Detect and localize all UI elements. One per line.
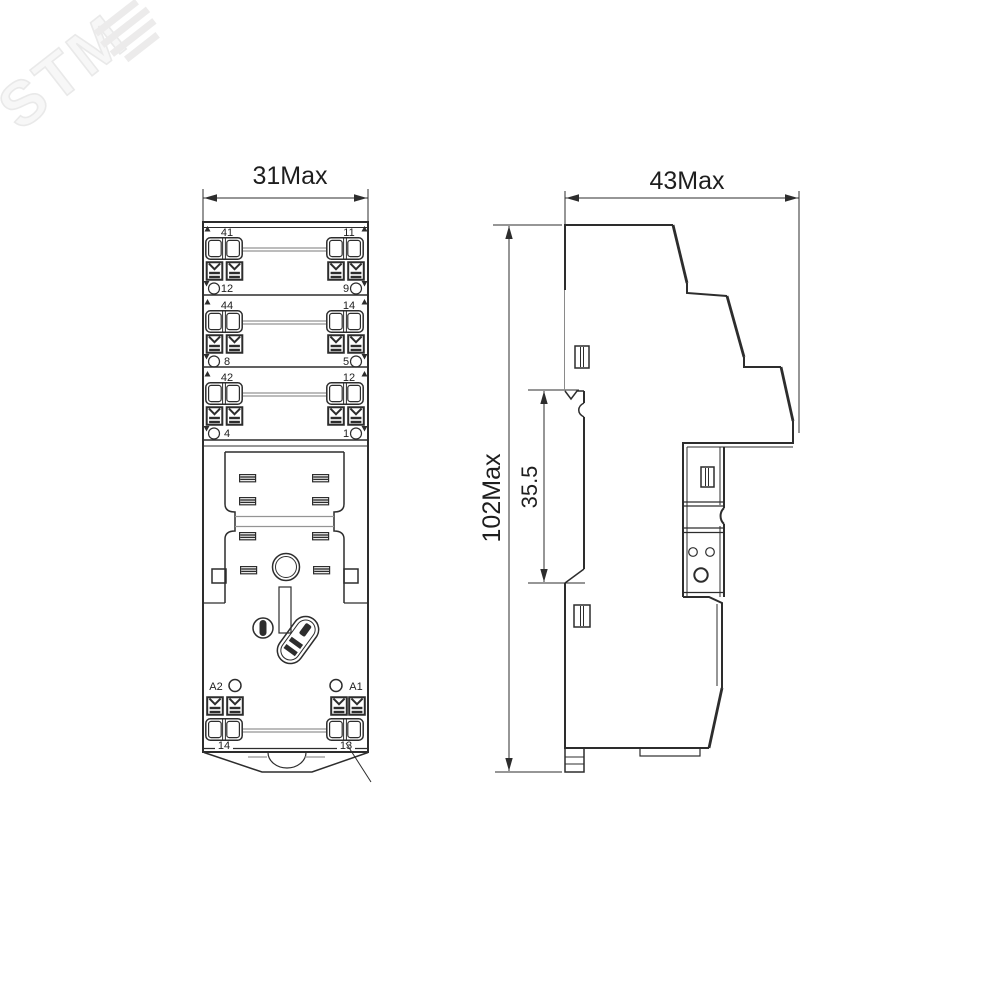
marker-up-icon <box>205 299 211 305</box>
front-width-label: 31Max <box>252 162 328 190</box>
marker-down-icon <box>362 354 368 360</box>
terminal-row-3: 42 12 4 1 <box>204 371 368 440</box>
terminal-label: 1 <box>343 428 349 440</box>
mounting-panel <box>203 452 368 669</box>
arrowhead-left-icon <box>566 194 579 201</box>
coil-label: A1 <box>349 681 362 693</box>
watermark: STM <box>0 0 164 143</box>
side-view: 43Max 102Max 35.5 <box>478 167 799 772</box>
watermark-text: STM <box>0 1 141 143</box>
side-tab-left <box>212 569 226 583</box>
marker-up-icon <box>205 226 211 232</box>
arrowhead-up-icon <box>505 226 512 239</box>
keyed-slot <box>272 611 324 668</box>
coil-label: 14 <box>218 740 230 752</box>
arrowhead-right-icon <box>785 194 798 201</box>
rail-notch <box>721 508 724 524</box>
terminal-label: 4 <box>224 428 230 440</box>
front-width-dimension: 31Max <box>203 162 368 221</box>
terminal-label: 5 <box>343 356 349 368</box>
side-depth-dimension: 43Max <box>565 167 799 433</box>
side-clip-dimension: 35.5 <box>517 390 585 583</box>
front-view: 31Max 41 11 12 9 44 14 <box>203 162 371 782</box>
side-height-label: 102Max <box>478 453 506 542</box>
side-terminal-screws <box>574 346 590 627</box>
marker-down-icon <box>362 281 368 287</box>
marker-up-icon <box>362 226 368 232</box>
relay-socket-dimension-drawing: STM 31Max 41 11 <box>0 0 1000 1000</box>
terminal-label: 9 <box>343 283 349 295</box>
center-stem <box>279 587 291 633</box>
marker-up-icon <box>362 299 368 305</box>
terminal-label: 12 <box>221 283 233 295</box>
terminal-row-2: 44 14 8 5 <box>204 299 368 368</box>
side-tab-right <box>344 569 358 583</box>
arrowhead-right-icon <box>354 194 367 201</box>
arrowhead-up-icon <box>540 391 547 404</box>
side-clip-label: 35.5 <box>517 466 542 509</box>
terminal-label: 8 <box>224 356 230 368</box>
din-rail-clip <box>683 447 724 597</box>
side-depth-label: 43Max <box>649 167 725 195</box>
technical-drawing-page: STM 31Max 41 11 <box>0 0 1000 1000</box>
arrowhead-down-icon <box>505 758 512 771</box>
coil-terminal-row: A2 A1 14 13 <box>203 680 368 753</box>
side-profile <box>565 225 794 748</box>
terminal-row-1: 41 11 12 9 <box>204 226 368 295</box>
clip-spring <box>701 467 714 487</box>
base-foot <box>565 748 700 772</box>
marker-up-icon <box>205 371 211 377</box>
arrowhead-down-icon <box>540 569 547 582</box>
arrowhead-left-icon <box>204 194 217 201</box>
coil-label: A2 <box>209 681 222 693</box>
marker-down-icon <box>362 426 368 432</box>
center-hole <box>273 554 300 581</box>
marker-up-icon <box>362 371 368 377</box>
